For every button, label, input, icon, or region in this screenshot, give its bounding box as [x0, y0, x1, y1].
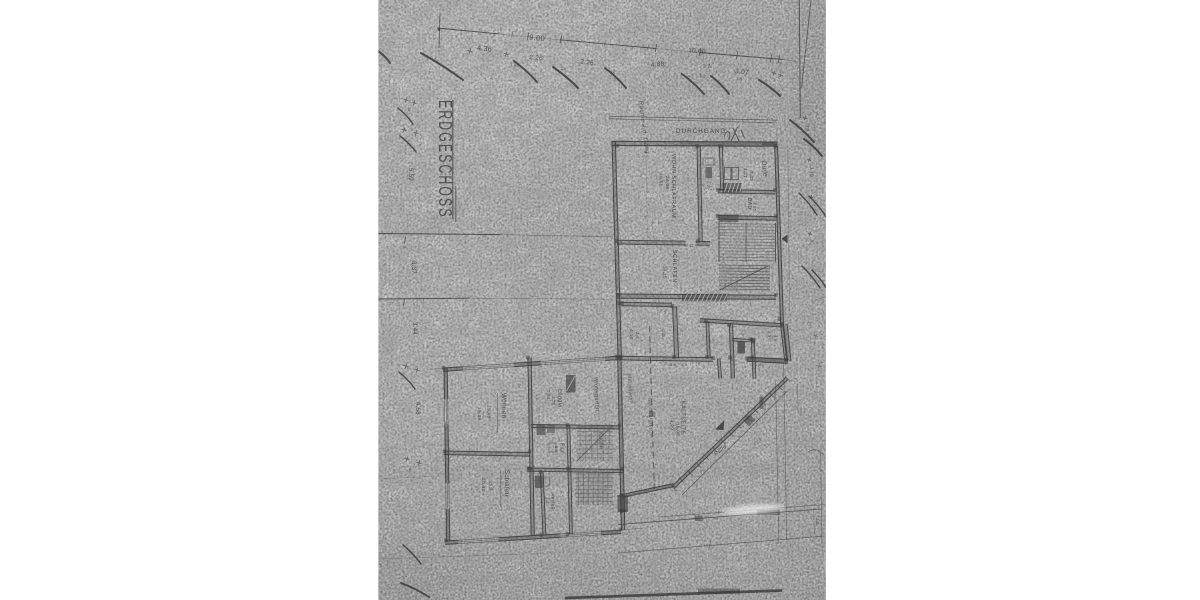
svg-text:20,48: 20,48	[480, 478, 486, 492]
svg-text:19,61: 19,61	[658, 173, 664, 187]
svg-text:1.5: 1.5	[736, 76, 743, 82]
svg-text:3.2: 3.2	[703, 63, 711, 70]
svg-text:1,8: 1,8	[535, 394, 539, 400]
svg-text:9.00: 9.00	[529, 33, 546, 44]
svg-text:17 S: 17 S	[721, 226, 725, 235]
svg-text:4: 4	[757, 343, 759, 347]
svg-text:1,10: 1,10	[810, 167, 815, 177]
svg-text:15,9: 15,9	[489, 481, 494, 491]
svg-text:2.26: 2.26	[529, 54, 544, 62]
svg-text:2,35: 2,35	[767, 331, 772, 340]
svg-text:BAD: BAD	[746, 198, 752, 209]
svg-text:1,4: 1,4	[711, 338, 715, 344]
svg-text:2,1: 2,1	[679, 330, 683, 336]
svg-text:SCHLAFEN: SCHLAFEN	[671, 250, 677, 283]
svg-text:4,3: 4,3	[545, 497, 550, 504]
svg-text:4,25: 4,25	[753, 202, 758, 211]
svg-text:4.88: 4.88	[650, 61, 665, 69]
svg-text:14,15: 14,15	[663, 266, 668, 279]
svg-text:Wohnen: Wohnen	[500, 393, 507, 419]
svg-text:1 2: 1 2	[660, 309, 666, 313]
svg-text:4,6: 4,6	[773, 335, 778, 342]
svg-text:ERDGESCHOSS: ERDGESCHOSS	[434, 100, 454, 219]
svg-text:7,42: 7,42	[749, 171, 754, 181]
svg-text:5: 5	[625, 459, 627, 463]
svg-text:Loggia: Loggia	[557, 389, 563, 408]
svg-text:7,84: 7,84	[546, 390, 551, 400]
svg-text:19,68: 19,68	[486, 405, 492, 419]
svg-text:3,28: 3,28	[551, 396, 556, 406]
svg-text:2: 2	[548, 471, 550, 475]
svg-text:24,06: 24,06	[664, 176, 670, 190]
svg-text:24: 24	[561, 66, 567, 72]
svg-text:19,09: 19,09	[476, 407, 482, 421]
svg-text:WOHN-SCHLAFRAUM: WOHN-SCHLAFRAUM	[670, 154, 676, 218]
svg-text:4.58: 4.58	[414, 402, 420, 415]
svg-text:1,20: 1,20	[706, 181, 710, 190]
svg-text:05: 05	[408, 468, 412, 473]
svg-text:4,5 · 1,5: 4,5 · 1,5	[670, 362, 688, 367]
svg-text:2: 2	[402, 246, 407, 249]
svg-text:1.2: 1.2	[699, 73, 706, 79]
svg-text:5.59: 5.59	[407, 168, 413, 181]
svg-text:Schlafen: Schlafen	[503, 470, 509, 497]
svg-text:2,5: 2,5	[635, 332, 640, 339]
svg-text:3,2: 3,2	[519, 380, 523, 386]
svg-text:2,2: 2,2	[536, 363, 542, 367]
svg-text:Diele: Diele	[760, 161, 768, 178]
svg-text:36: 36	[407, 107, 411, 112]
svg-text:Küche: Küche	[597, 432, 604, 450]
svg-text:0,9: 0,9	[704, 297, 710, 301]
svg-text:9,0: 9,0	[588, 463, 594, 467]
svg-text:3.44: 3.44	[411, 322, 417, 335]
svg-text:4,29: 4,29	[670, 420, 675, 430]
svg-text:3,5: 3,5	[805, 125, 810, 132]
svg-text:3.37: 3.37	[410, 261, 416, 274]
svg-text:2,5: 2,5	[661, 330, 666, 337]
svg-text:2,0: 2,0	[815, 518, 820, 525]
svg-text:5,0: 5,0	[554, 446, 559, 453]
svg-text:2.26: 2.26	[580, 59, 595, 67]
svg-text:10,06: 10,06	[676, 423, 681, 436]
svg-text:4,27: 4,27	[743, 168, 748, 178]
svg-text:1,0: 1,0	[699, 206, 703, 212]
svg-text:DURCHGANG: DURCHGANG	[676, 128, 726, 135]
svg-text:2,0: 2,0	[741, 330, 745, 336]
svg-text:W·D: W·D	[684, 243, 694, 248]
svg-text:1,40: 1,40	[755, 362, 764, 367]
svg-text:4,10: 4,10	[628, 329, 634, 340]
